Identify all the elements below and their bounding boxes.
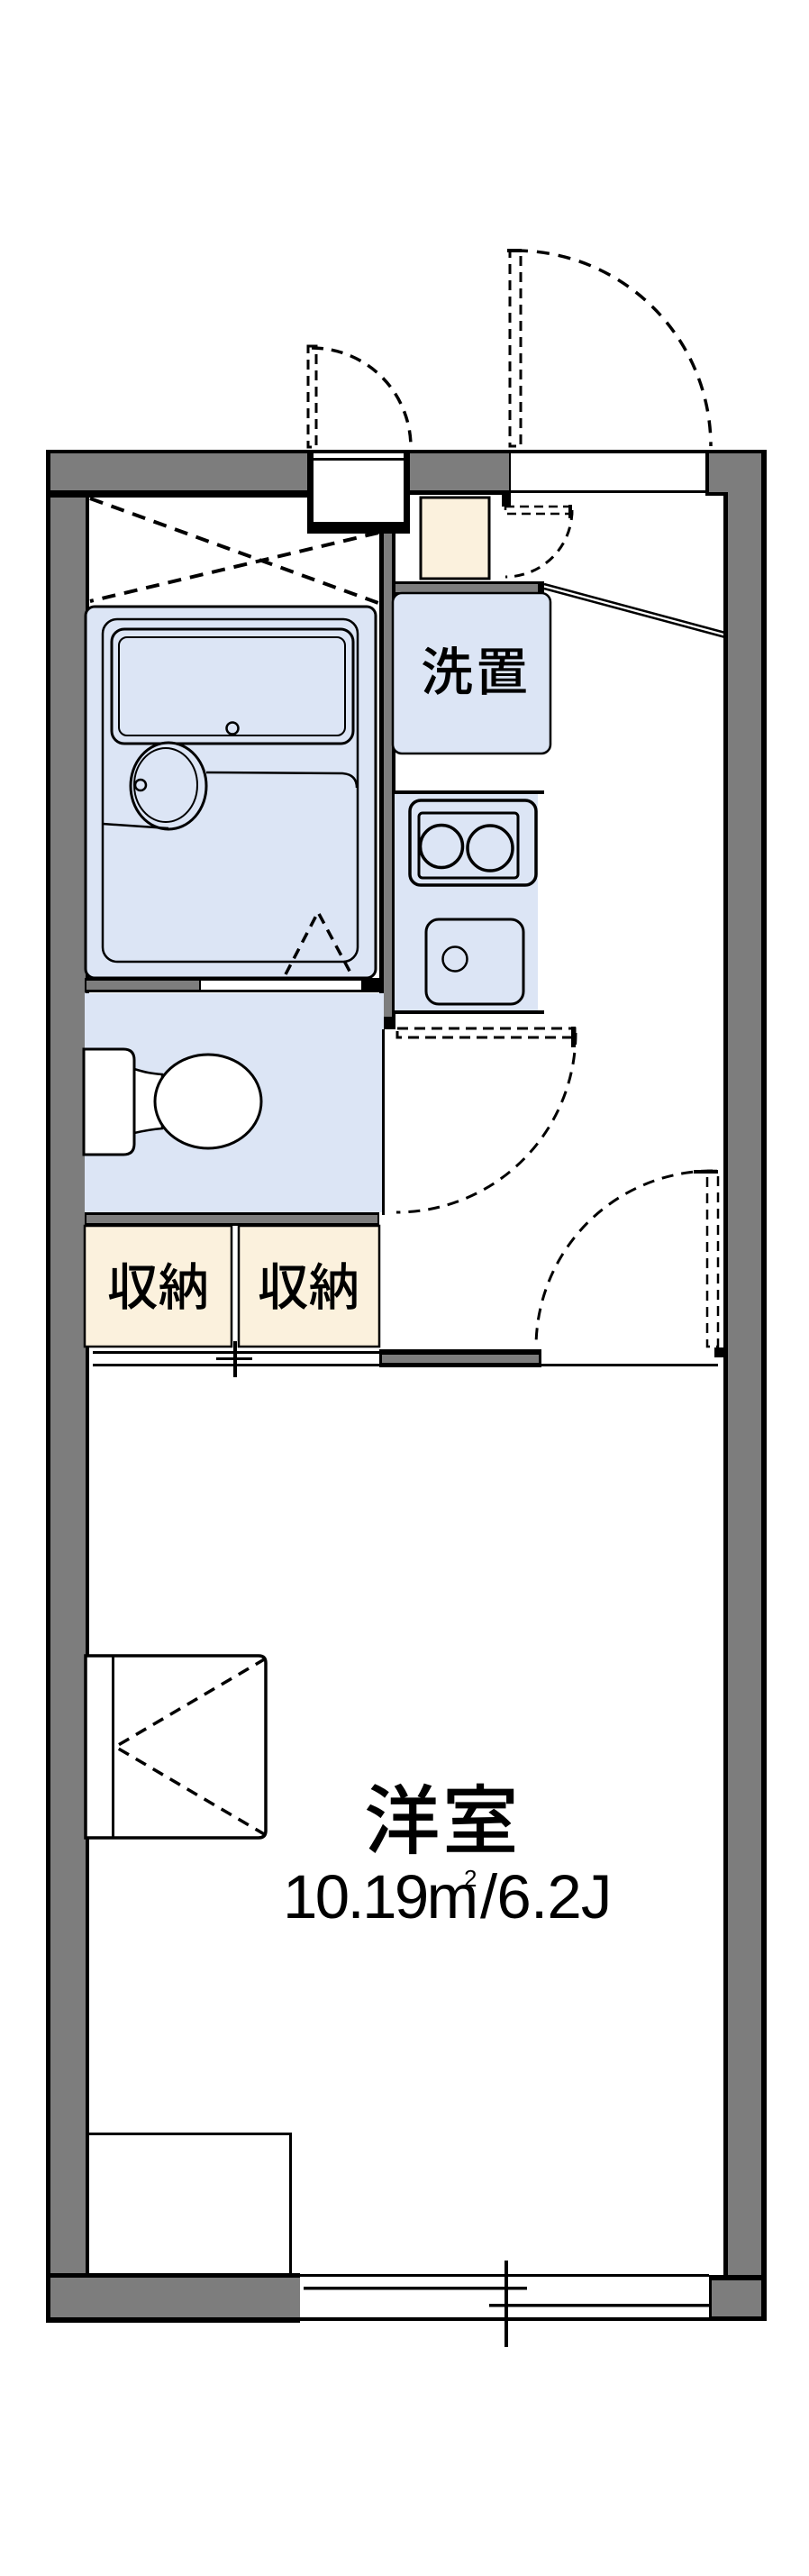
svg-text:10.19m: 10.19m <box>283 1862 477 1932</box>
svg-text:/6.2J: /6.2J <box>480 1862 612 1932</box>
svg-text:2: 2 <box>464 1865 477 1892</box>
